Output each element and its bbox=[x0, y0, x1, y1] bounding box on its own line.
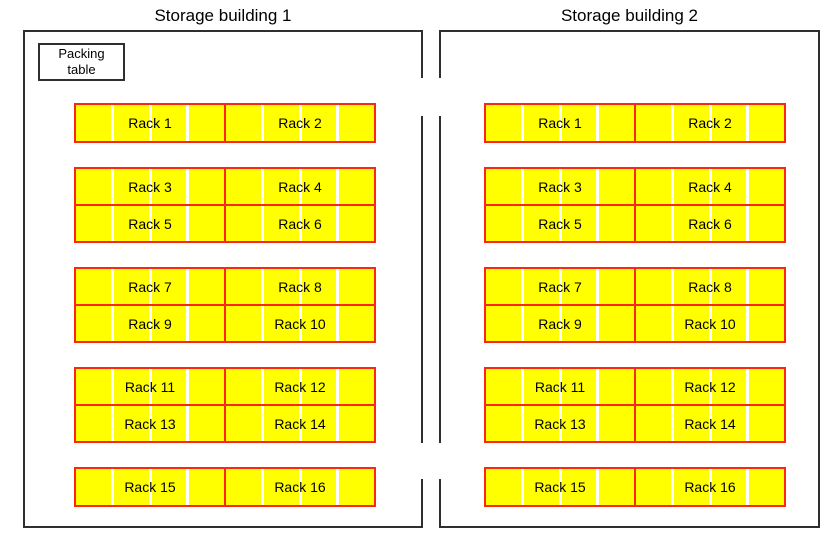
rack: Rack 1 bbox=[486, 105, 634, 141]
rack-row: Rack 7Rack 8 bbox=[76, 269, 374, 304]
rack: Rack 16 bbox=[636, 469, 784, 505]
rack-segment bbox=[636, 306, 671, 341]
rack-segment bbox=[599, 369, 634, 404]
rack-segment bbox=[749, 406, 784, 441]
building-1-right-wall-upper-segment bbox=[421, 30, 423, 78]
rack-row: Rack 1Rack 2 bbox=[76, 105, 374, 141]
rack-block: Rack 15Rack 16 bbox=[74, 467, 376, 507]
rack-segment bbox=[562, 269, 597, 304]
packing-table: Packing table bbox=[38, 43, 125, 81]
rack-segment bbox=[226, 169, 261, 204]
rack-row: Rack 11Rack 12 bbox=[486, 369, 784, 404]
rack-segment bbox=[524, 469, 559, 505]
rack-segment bbox=[712, 169, 747, 204]
rack-row: Rack 1Rack 2 bbox=[486, 105, 784, 141]
rack-block: Rack 7Rack 8Rack 9Rack 10 bbox=[74, 267, 376, 343]
rack-segment bbox=[712, 369, 747, 404]
rack-segment bbox=[152, 169, 187, 204]
rack: Rack 11 bbox=[486, 369, 634, 404]
rack-segment bbox=[562, 369, 597, 404]
rack-segment bbox=[562, 206, 597, 241]
rack: Rack 7 bbox=[486, 269, 634, 304]
rack-row: Rack 9Rack 10 bbox=[486, 306, 784, 341]
rack: Rack 15 bbox=[76, 469, 224, 505]
rack-segment bbox=[636, 105, 671, 141]
rack-segment bbox=[562, 169, 597, 204]
rack-segment bbox=[226, 269, 261, 304]
rack: Rack 13 bbox=[486, 406, 634, 441]
rack: Rack 15 bbox=[486, 469, 634, 505]
rack: Rack 6 bbox=[226, 206, 374, 241]
rack-segment bbox=[264, 105, 299, 141]
packing-table-label-line1: Packing bbox=[58, 46, 104, 62]
rack-segment bbox=[636, 469, 671, 505]
rack-segment bbox=[264, 469, 299, 505]
rack-segment bbox=[524, 169, 559, 204]
rack-segment bbox=[339, 469, 374, 505]
rack-segment bbox=[226, 105, 261, 141]
rack-segment bbox=[486, 169, 521, 204]
rack-segment bbox=[674, 306, 709, 341]
rack-segment bbox=[189, 469, 224, 505]
rack: Rack 7 bbox=[76, 269, 224, 304]
warehouse-floor-plan: Storage building 1 Storage building 2 Pa… bbox=[0, 0, 835, 543]
rack: Rack 9 bbox=[486, 306, 634, 341]
rack: Rack 4 bbox=[226, 169, 374, 204]
rack-segment bbox=[712, 406, 747, 441]
rack-segment bbox=[226, 206, 261, 241]
rack-segment bbox=[749, 469, 784, 505]
rack-segment bbox=[226, 306, 261, 341]
rack-block: Rack 3Rack 4Rack 5Rack 6 bbox=[74, 167, 376, 243]
rack-segment bbox=[636, 206, 671, 241]
rack-segment bbox=[636, 169, 671, 204]
rack-segment bbox=[114, 369, 149, 404]
rack-segment bbox=[302, 306, 337, 341]
rack-segment bbox=[189, 169, 224, 204]
rack-segment bbox=[562, 406, 597, 441]
rack-segment bbox=[486, 406, 521, 441]
rack-segment bbox=[114, 169, 149, 204]
building-2-title: Storage building 2 bbox=[439, 4, 820, 28]
rack-row: Rack 11Rack 12 bbox=[76, 369, 374, 404]
rack-segment bbox=[674, 369, 709, 404]
rack-block: Rack 7Rack 8Rack 9Rack 10 bbox=[484, 267, 786, 343]
rack-segment bbox=[486, 105, 521, 141]
rack-segment bbox=[189, 105, 224, 141]
rack-segment bbox=[712, 269, 747, 304]
rack-segment bbox=[712, 469, 747, 505]
rack: Rack 3 bbox=[486, 169, 634, 204]
rack-segment bbox=[114, 105, 149, 141]
rack-segment bbox=[76, 406, 111, 441]
rack-segment bbox=[226, 406, 261, 441]
rack-segment bbox=[636, 406, 671, 441]
rack-segment bbox=[302, 105, 337, 141]
rack-segment bbox=[599, 469, 634, 505]
rack: Rack 3 bbox=[76, 169, 224, 204]
rack-segment bbox=[339, 105, 374, 141]
rack: Rack 8 bbox=[636, 269, 784, 304]
rack-segment bbox=[264, 269, 299, 304]
rack-segment bbox=[114, 469, 149, 505]
rack-segment bbox=[76, 306, 111, 341]
rack-segment bbox=[749, 105, 784, 141]
rack: Rack 5 bbox=[76, 206, 224, 241]
rack-row: Rack 3Rack 4 bbox=[76, 169, 374, 204]
rack-segment bbox=[264, 406, 299, 441]
rack-segment bbox=[302, 469, 337, 505]
rack-segment bbox=[226, 469, 261, 505]
rack-segment bbox=[189, 369, 224, 404]
rack: Rack 6 bbox=[636, 206, 784, 241]
rack-segment bbox=[114, 269, 149, 304]
rack-block: Rack 11Rack 12Rack 13Rack 14 bbox=[74, 367, 376, 443]
rack-segment bbox=[674, 406, 709, 441]
rack-segment bbox=[674, 105, 709, 141]
rack-segment bbox=[562, 105, 597, 141]
rack: Rack 13 bbox=[76, 406, 224, 441]
rack-row: Rack 15Rack 16 bbox=[486, 469, 784, 505]
rack-segment bbox=[599, 269, 634, 304]
building-2-left-wall-lower-segment bbox=[439, 479, 441, 526]
rack-segment bbox=[486, 206, 521, 241]
rack-segment bbox=[524, 306, 559, 341]
rack-segment bbox=[524, 206, 559, 241]
rack-segment bbox=[76, 206, 111, 241]
rack-row: Rack 13Rack 14 bbox=[76, 406, 374, 441]
rack-segment bbox=[599, 105, 634, 141]
rack-segment bbox=[339, 269, 374, 304]
rack: Rack 14 bbox=[226, 406, 374, 441]
rack-block: Rack 15Rack 16 bbox=[484, 467, 786, 507]
rack-segment bbox=[189, 406, 224, 441]
building-2: Rack 1Rack 2Rack 3Rack 4Rack 5Rack 6Rack… bbox=[439, 30, 820, 528]
rack-segment bbox=[636, 269, 671, 304]
rack-segment bbox=[674, 169, 709, 204]
rack-segment bbox=[152, 269, 187, 304]
rack-segment bbox=[712, 105, 747, 141]
rack-block: Rack 1Rack 2 bbox=[74, 103, 376, 143]
rack-segment bbox=[152, 206, 187, 241]
rack-segment bbox=[264, 306, 299, 341]
rack-segment bbox=[749, 169, 784, 204]
rack-segment bbox=[524, 406, 559, 441]
rack-segment bbox=[189, 206, 224, 241]
rack-segment bbox=[114, 206, 149, 241]
rack-segment bbox=[749, 306, 784, 341]
rack: Rack 9 bbox=[76, 306, 224, 341]
rack: Rack 16 bbox=[226, 469, 374, 505]
rack-segment bbox=[339, 369, 374, 404]
rack-block: Rack 1Rack 2 bbox=[484, 103, 786, 143]
rack-segment bbox=[302, 169, 337, 204]
rack-segment bbox=[636, 369, 671, 404]
rack-segment bbox=[562, 469, 597, 505]
rack-block: Rack 3Rack 4Rack 5Rack 6 bbox=[484, 167, 786, 243]
rack: Rack 2 bbox=[226, 105, 374, 141]
rack-segment bbox=[152, 105, 187, 141]
rack-row: Rack 13Rack 14 bbox=[486, 406, 784, 441]
rack-segment bbox=[524, 269, 559, 304]
building-1-title: Storage building 1 bbox=[23, 4, 423, 28]
rack-segment bbox=[264, 369, 299, 404]
rack-segment bbox=[264, 206, 299, 241]
building-1-right-wall-middle-segment bbox=[421, 116, 423, 443]
rack-segment bbox=[302, 269, 337, 304]
rack: Rack 10 bbox=[636, 306, 784, 341]
rack-segment bbox=[152, 406, 187, 441]
rack-segment bbox=[674, 469, 709, 505]
rack: Rack 8 bbox=[226, 269, 374, 304]
packing-table-label-line2: table bbox=[67, 62, 95, 78]
rack-segment bbox=[486, 269, 521, 304]
rack-block: Rack 11Rack 12Rack 13Rack 14 bbox=[484, 367, 786, 443]
rack-row: Rack 15Rack 16 bbox=[76, 469, 374, 505]
rack-segment bbox=[674, 206, 709, 241]
rack-segment bbox=[749, 369, 784, 404]
rack-segment bbox=[674, 269, 709, 304]
building-1: Packing table Rack 1Rack 2Rack 3Rack 4Ra… bbox=[23, 30, 423, 528]
rack-segment bbox=[76, 169, 111, 204]
rack-segment bbox=[76, 469, 111, 505]
rack-row: Rack 9Rack 10 bbox=[76, 306, 374, 341]
rack-segment bbox=[712, 306, 747, 341]
rack-segment bbox=[152, 469, 187, 505]
rack-row: Rack 5Rack 6 bbox=[486, 206, 784, 241]
rack: Rack 12 bbox=[226, 369, 374, 404]
rack-segment bbox=[189, 306, 224, 341]
rack: Rack 14 bbox=[636, 406, 784, 441]
rack-segment bbox=[712, 206, 747, 241]
rack: Rack 1 bbox=[76, 105, 224, 141]
rack-segment bbox=[599, 206, 634, 241]
rack-segment bbox=[562, 306, 597, 341]
rack-segment bbox=[76, 369, 111, 404]
rack-segment bbox=[152, 306, 187, 341]
building-2-left-wall-upper-segment bbox=[439, 30, 441, 78]
rack-segment bbox=[76, 105, 111, 141]
rack-segment bbox=[339, 406, 374, 441]
rack-segment bbox=[524, 369, 559, 404]
rack-segment bbox=[599, 306, 634, 341]
rack-row: Rack 5Rack 6 bbox=[76, 206, 374, 241]
rack-segment bbox=[302, 406, 337, 441]
rack-segment bbox=[339, 169, 374, 204]
rack-segment bbox=[339, 206, 374, 241]
rack-row: Rack 3Rack 4 bbox=[486, 169, 784, 204]
rack-segment bbox=[599, 169, 634, 204]
rack-segment bbox=[749, 269, 784, 304]
rack: Rack 10 bbox=[226, 306, 374, 341]
rack: Rack 5 bbox=[486, 206, 634, 241]
rack-segment bbox=[302, 206, 337, 241]
rack-segment bbox=[486, 469, 521, 505]
rack: Rack 2 bbox=[636, 105, 784, 141]
rack-segment bbox=[524, 105, 559, 141]
rack-segment bbox=[264, 169, 299, 204]
rack-segment bbox=[599, 406, 634, 441]
rack-segment bbox=[152, 369, 187, 404]
rack-segment bbox=[114, 406, 149, 441]
rack-segment bbox=[114, 306, 149, 341]
rack-segment bbox=[76, 269, 111, 304]
rack-segment bbox=[189, 269, 224, 304]
building-2-left-wall-middle-segment bbox=[439, 116, 441, 443]
rack: Rack 4 bbox=[636, 169, 784, 204]
rack: Rack 11 bbox=[76, 369, 224, 404]
rack-segment bbox=[339, 306, 374, 341]
building-1-right-wall-lower-segment bbox=[421, 479, 423, 526]
rack-segment bbox=[486, 306, 521, 341]
rack-segment bbox=[749, 206, 784, 241]
rack: Rack 12 bbox=[636, 369, 784, 404]
rack-segment bbox=[226, 369, 261, 404]
rack-segment bbox=[302, 369, 337, 404]
rack-row: Rack 7Rack 8 bbox=[486, 269, 784, 304]
rack-segment bbox=[486, 369, 521, 404]
